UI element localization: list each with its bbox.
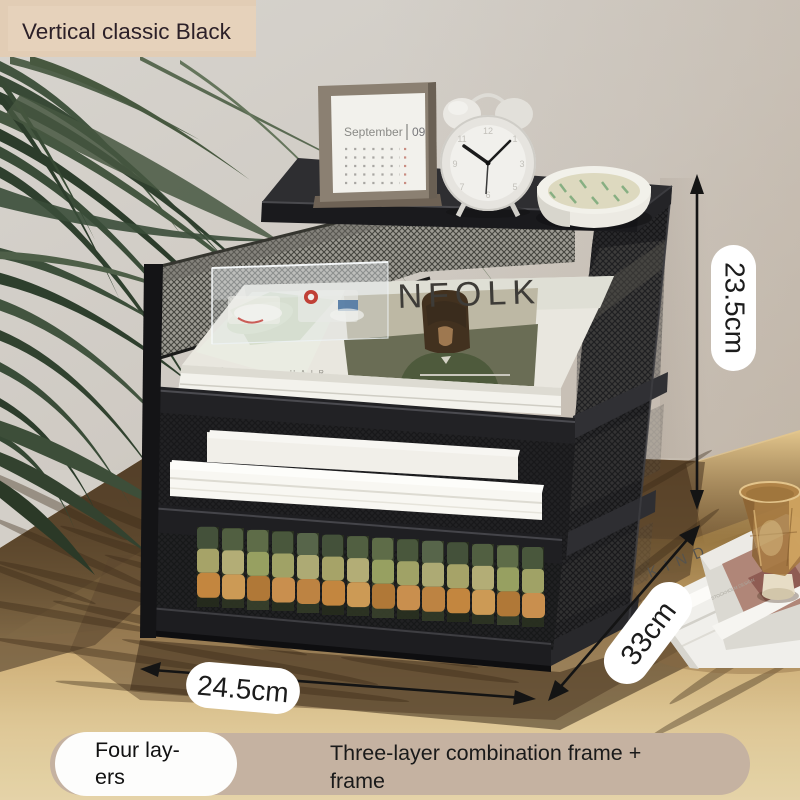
svg-text:9: 9 [452,159,457,169]
svg-text:ers: ers [95,765,125,789]
svg-text:7: 7 [459,182,464,192]
svg-text:Vertical classic Black: Vertical classic Black [22,19,232,44]
svg-text:11: 11 [457,134,466,144]
svg-text:1: 1 [512,134,517,144]
svg-text:Four lay-: Four lay- [95,738,180,762]
svg-text:NFOLK: NFOLK [397,273,542,316]
svg-text:3: 3 [519,159,524,169]
svg-text:23.5cm: 23.5cm [720,262,751,354]
svg-text:5: 5 [512,182,517,192]
svg-text:September: September [344,125,403,139]
svg-text:frame: frame [330,769,385,793]
svg-text:Three-layer combination frame: Three-layer combination frame + [330,741,641,765]
svg-text:09: 09 [412,125,426,139]
svg-text:12: 12 [483,126,493,136]
